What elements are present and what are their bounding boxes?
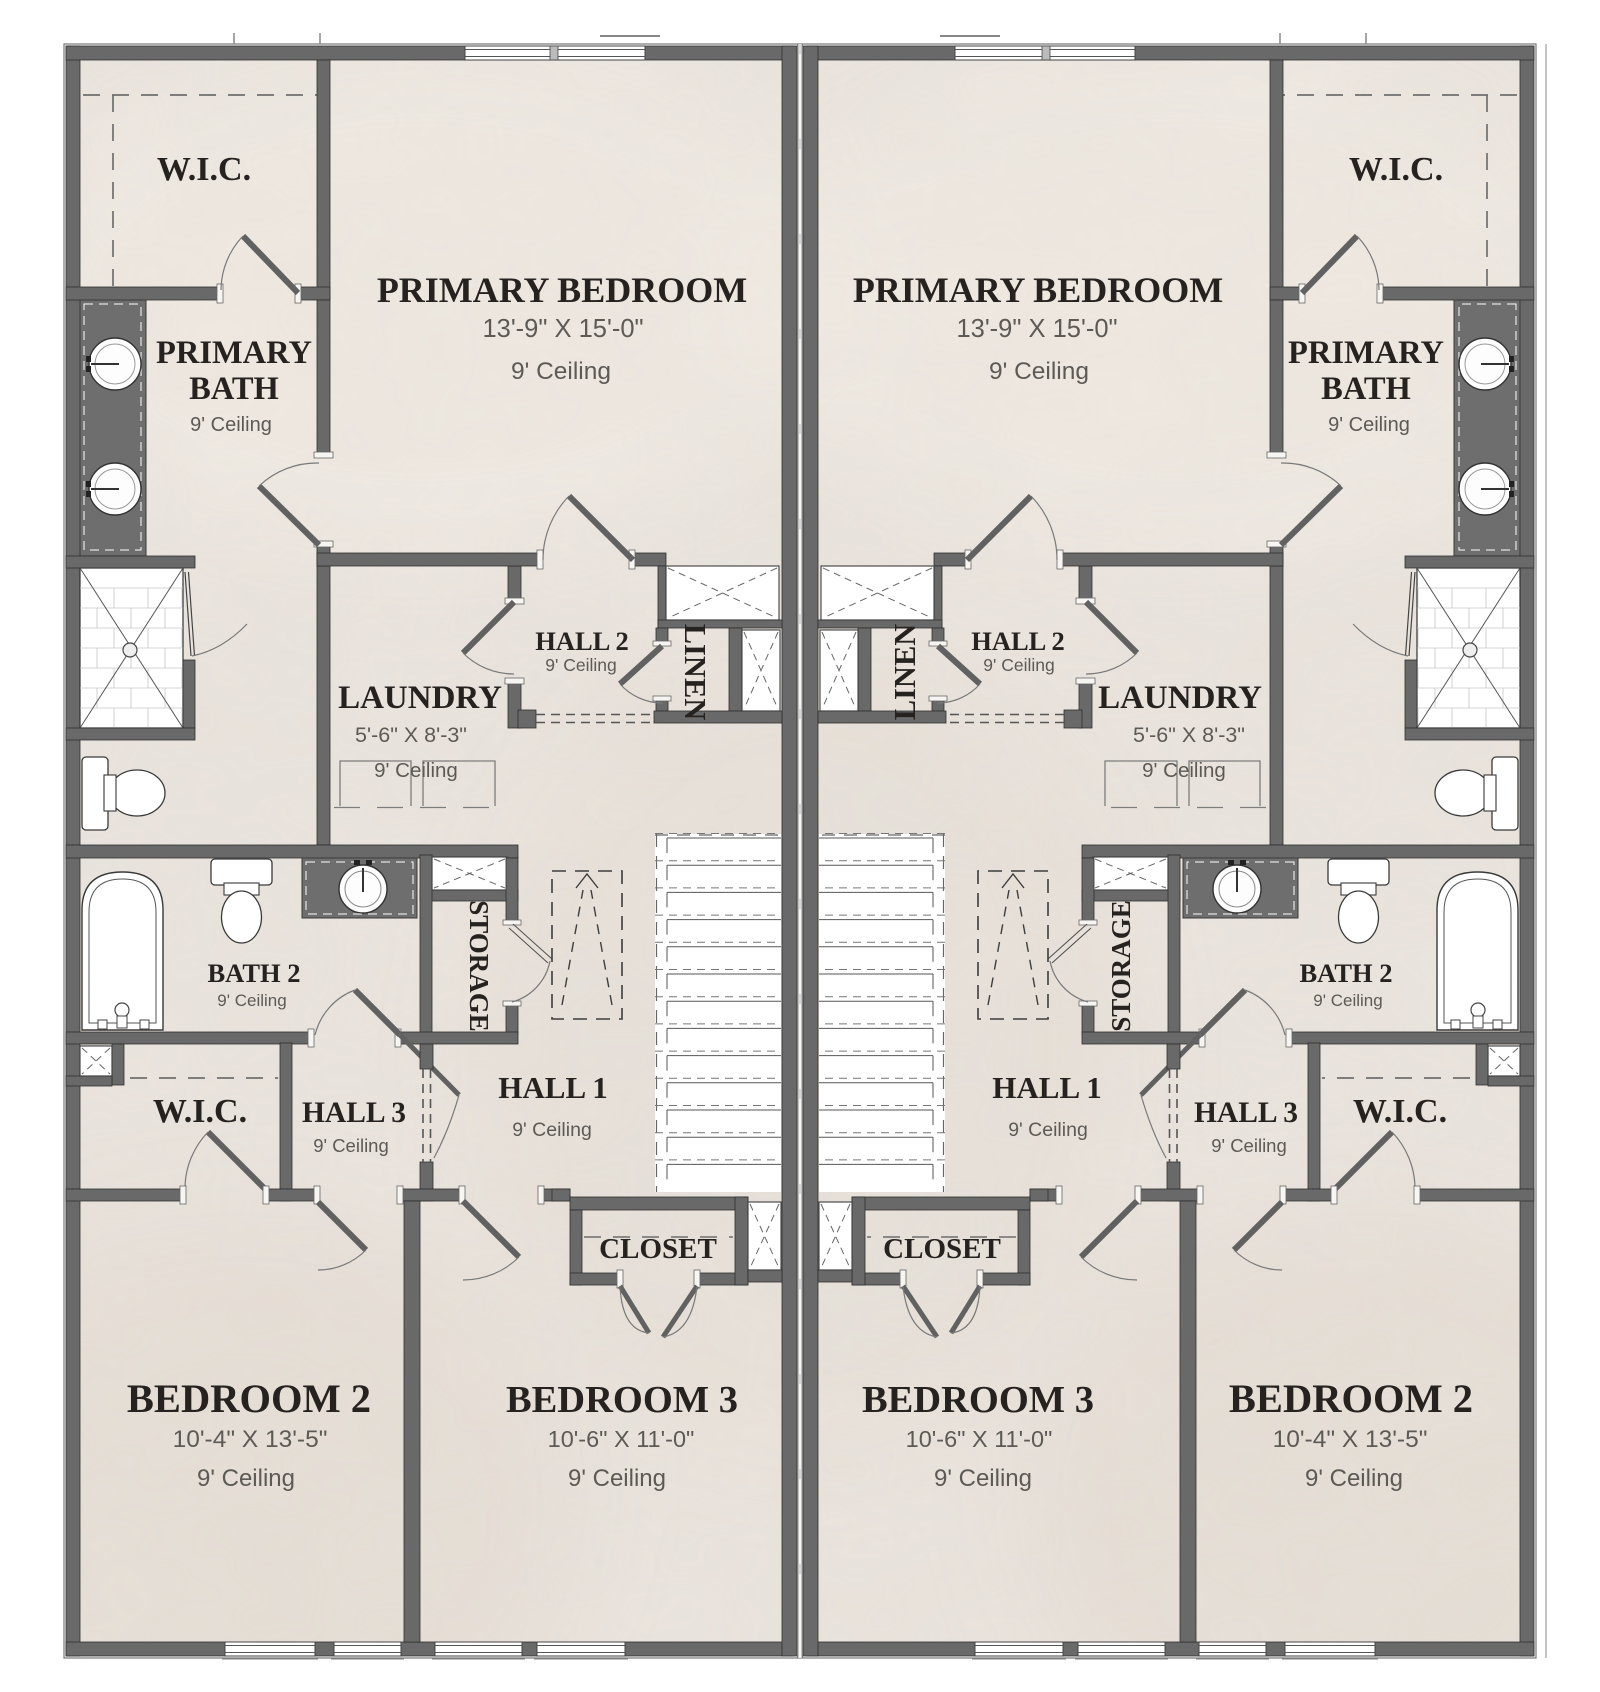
svg-text:LAUNDRY: LAUNDRY [338, 680, 502, 716]
svg-text:HALL 3: HALL 3 [302, 1097, 406, 1129]
svg-text:BATH 2: BATH 2 [1299, 958, 1392, 988]
svg-text:10'-4" X 13'-5": 10'-4" X 13'-5" [173, 1426, 328, 1453]
svg-text:9' Ceiling: 9' Ceiling [313, 1135, 389, 1156]
svg-text:STORAGE: STORAGE [1106, 900, 1136, 1032]
svg-text:BEDROOM 3: BEDROOM 3 [862, 1379, 1094, 1421]
svg-text:HALL 2: HALL 2 [971, 626, 1065, 656]
svg-text:9' Ceiling: 9' Ceiling [217, 991, 286, 1010]
svg-text:HALL 2: HALL 2 [535, 626, 629, 656]
svg-text:CLOSET: CLOSET [883, 1233, 1001, 1265]
svg-text:PRIMARY: PRIMARY [1288, 335, 1444, 371]
svg-text:9' Ceiling: 9' Ceiling [374, 759, 458, 782]
svg-text:BATH: BATH [189, 371, 279, 407]
svg-text:W.I.C.: W.I.C. [1353, 1093, 1447, 1130]
svg-text:9' Ceiling: 9' Ceiling [1142, 759, 1226, 782]
svg-text:BEDROOM 2: BEDROOM 2 [127, 1376, 371, 1421]
svg-text:PRIMARY BEDROOM: PRIMARY BEDROOM [377, 270, 747, 310]
svg-text:5'-6" X 8'-3": 5'-6" X 8'-3" [355, 723, 467, 747]
svg-text:10'-4" X 13'-5": 10'-4" X 13'-5" [1273, 1426, 1428, 1453]
svg-text:PRIMARY: PRIMARY [156, 335, 312, 371]
svg-text:PRIMARY BEDROOM: PRIMARY BEDROOM [853, 270, 1223, 310]
svg-text:13'-9" X 15'-0": 13'-9" X 15'-0" [956, 315, 1117, 343]
svg-text:10'-6" X 11'-0": 10'-6" X 11'-0" [548, 1426, 695, 1452]
svg-text:W.I.C.: W.I.C. [153, 1093, 247, 1130]
svg-text:HALL 1: HALL 1 [498, 1070, 607, 1105]
svg-text:BEDROOM 2: BEDROOM 2 [1229, 1376, 1473, 1421]
svg-text:W.I.C.: W.I.C. [157, 151, 251, 188]
svg-text:5'-6" X 8'-3": 5'-6" X 8'-3" [1133, 723, 1245, 747]
svg-text:CLOSET: CLOSET [599, 1233, 717, 1265]
svg-text:HALL 3: HALL 3 [1194, 1097, 1298, 1129]
svg-text:9' Ceiling: 9' Ceiling [1305, 1465, 1403, 1492]
svg-text:BATH: BATH [1321, 371, 1411, 407]
svg-text:9' Ceiling: 9' Ceiling [1328, 414, 1410, 436]
svg-text:9' Ceiling: 9' Ceiling [568, 1465, 666, 1492]
svg-text:9' Ceiling: 9' Ceiling [1211, 1135, 1287, 1156]
svg-text:9' Ceiling: 9' Ceiling [190, 414, 272, 436]
svg-text:HALL 1: HALL 1 [992, 1070, 1101, 1105]
svg-text:LINEN: LINEN [888, 624, 922, 721]
svg-text:LAUNDRY: LAUNDRY [1098, 680, 1262, 716]
svg-text:BATH 2: BATH 2 [207, 958, 300, 988]
svg-text:STORAGE: STORAGE [464, 900, 494, 1032]
svg-text:9' Ceiling: 9' Ceiling [545, 655, 616, 675]
svg-text:9' Ceiling: 9' Ceiling [934, 1465, 1032, 1492]
svg-text:9' Ceiling: 9' Ceiling [1008, 1119, 1088, 1141]
svg-text:9' Ceiling: 9' Ceiling [197, 1465, 295, 1492]
svg-text:10'-6" X 11'-0": 10'-6" X 11'-0" [906, 1426, 1053, 1452]
svg-text:9' Ceiling: 9' Ceiling [983, 655, 1054, 675]
svg-text:LINEN: LINEN [678, 624, 712, 721]
svg-text:W.I.C.: W.I.C. [1349, 151, 1443, 188]
svg-text:9' Ceiling: 9' Ceiling [511, 358, 611, 385]
svg-text:9' Ceiling: 9' Ceiling [1313, 991, 1382, 1010]
svg-text:9' Ceiling: 9' Ceiling [512, 1119, 592, 1141]
svg-text:13'-9" X 15'-0": 13'-9" X 15'-0" [482, 315, 643, 343]
svg-text:BEDROOM 3: BEDROOM 3 [506, 1379, 738, 1421]
svg-text:9' Ceiling: 9' Ceiling [989, 358, 1089, 385]
